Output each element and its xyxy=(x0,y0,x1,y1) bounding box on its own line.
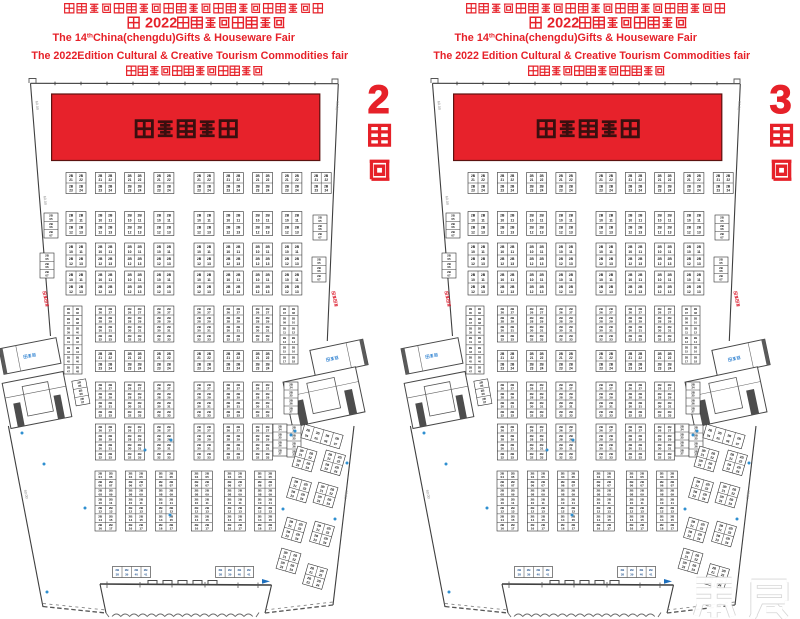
svg-text:The 14thChina(chengdu)Gifts &: The 14thChina(chengdu)Gifts & Houseware … xyxy=(455,32,698,44)
svg-text:The 2022 Edition Cultural & Cr: The 2022 Edition Cultural & Creative Tou… xyxy=(433,50,750,62)
svg-text:2: 2 xyxy=(367,78,389,122)
svg-text:3: 3 xyxy=(769,78,791,122)
svg-text:2022: 2022 xyxy=(145,16,177,32)
svg-text:The 2022Edition Cultural & Cre: The 2022Edition Cultural & Creative Tour… xyxy=(31,50,348,62)
svg-text:The 14thChina(chengdu)Gifts &: The 14thChina(chengdu)Gifts & Houseware … xyxy=(53,32,296,44)
svg-text:2022: 2022 xyxy=(547,16,579,32)
